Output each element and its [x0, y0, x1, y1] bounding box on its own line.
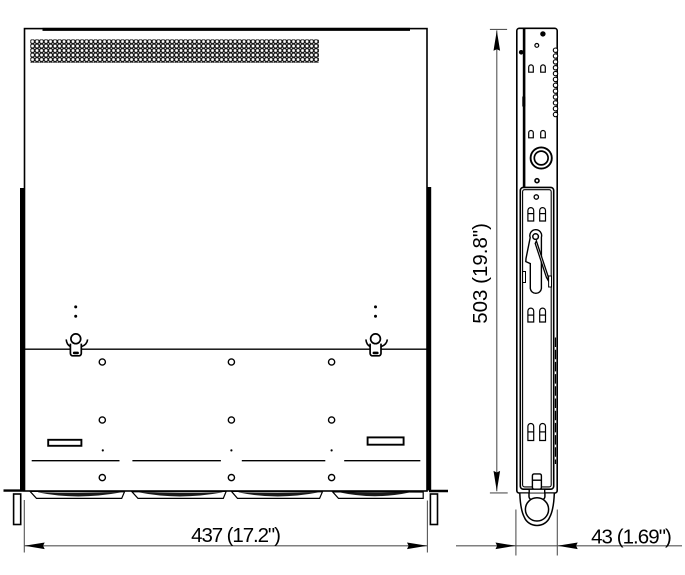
svg-text:503 (19.8"): 503 (19.8") — [469, 223, 492, 324]
svg-text:437 (17.2"): 437 (17.2") — [191, 524, 280, 547]
svg-text:43 (1.69"): 43 (1.69") — [591, 525, 671, 548]
